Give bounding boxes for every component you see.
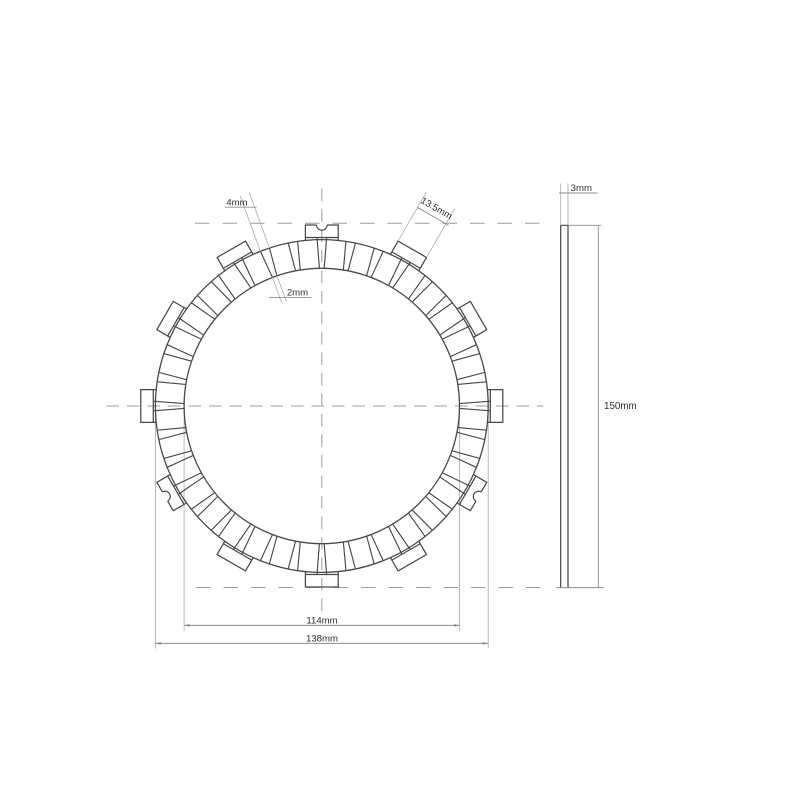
svg-text:2mm: 2mm [287,287,308,298]
svg-text:3mm: 3mm [571,183,592,194]
svg-text:4mm: 4mm [226,197,247,208]
svg-text:138mm: 138mm [306,633,338,644]
svg-text:150mm: 150mm [604,401,637,412]
svg-text:114mm: 114mm [306,615,337,626]
